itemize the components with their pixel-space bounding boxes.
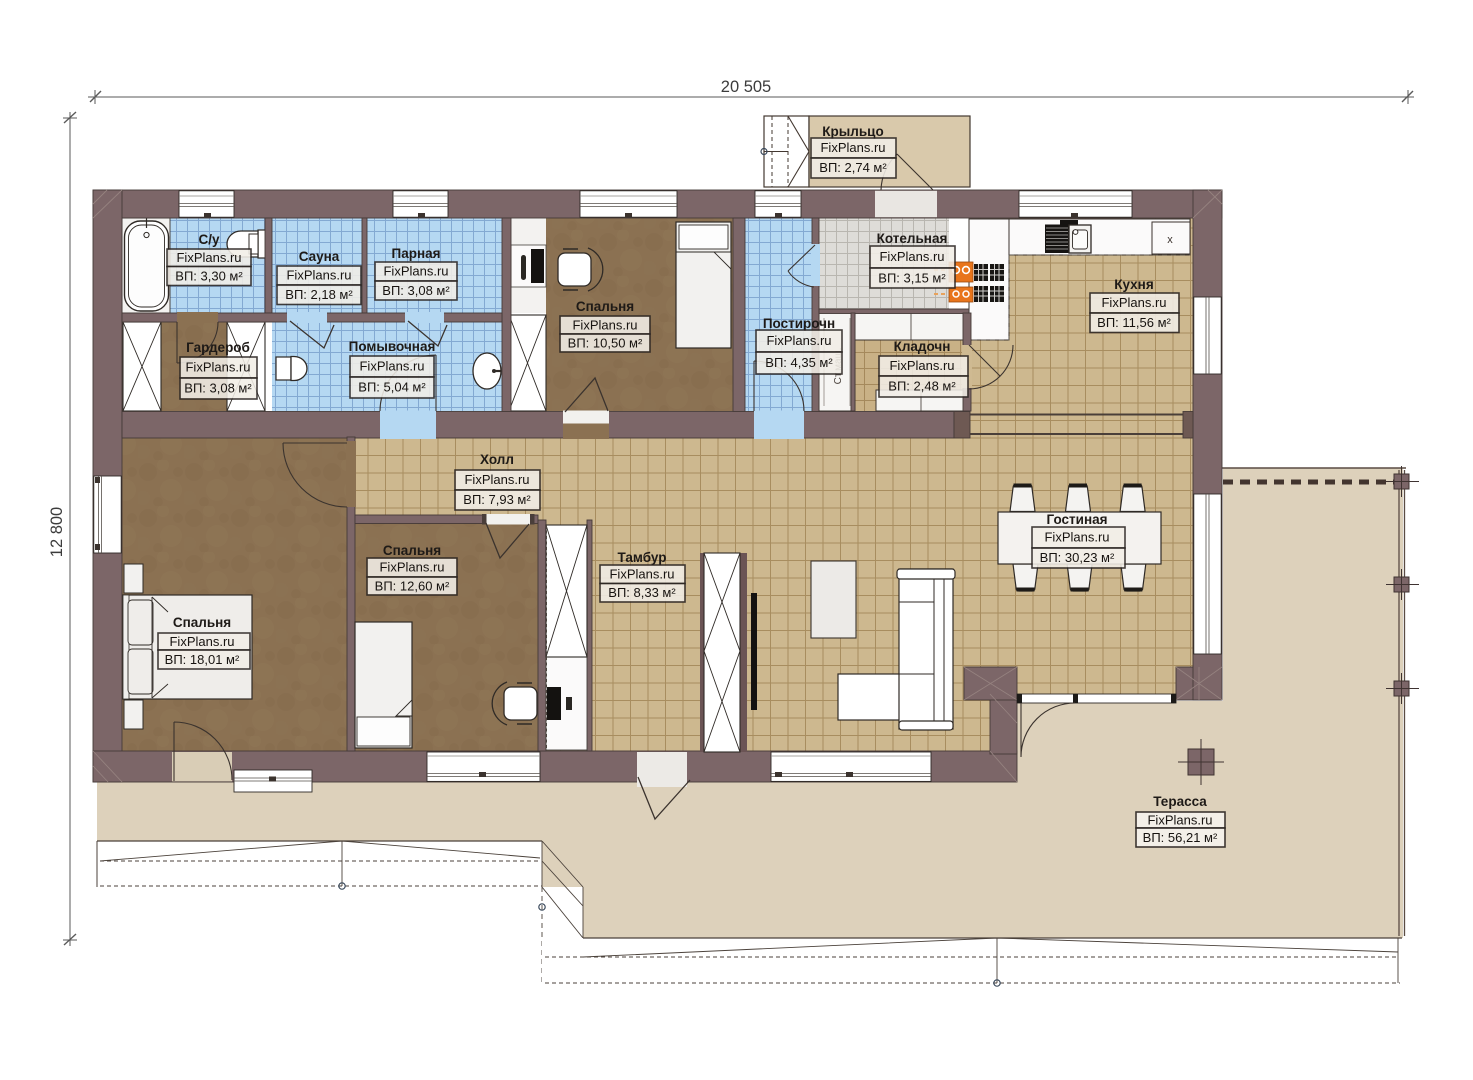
svg-text:Кладочн: Кладочн (894, 339, 951, 354)
svg-text:ВП: 56,21 м²: ВП: 56,21 м² (1143, 830, 1218, 845)
svg-text:Спальня: Спальня (576, 299, 634, 314)
svg-text:Сауна: Сауна (299, 249, 340, 264)
svg-text:FixPlans.ru: FixPlans.ru (889, 358, 954, 373)
svg-text:FixPlans.ru: FixPlans.ru (185, 360, 250, 375)
svg-text:FixPlans.ru: FixPlans.ru (383, 264, 448, 279)
svg-text:ВП: 30,23 м²: ВП: 30,23 м² (1040, 550, 1115, 565)
svg-text:ВП: 2,74 м²: ВП: 2,74 м² (819, 160, 887, 175)
svg-text:FixPlans.ru: FixPlans.ru (1101, 295, 1166, 310)
svg-text:FixPlans.ru: FixPlans.ru (766, 333, 831, 348)
svg-text:FixPlans.ru: FixPlans.ru (176, 250, 241, 265)
svg-text:Парная: Парная (392, 246, 441, 261)
svg-text:ВП: 5,04 м²: ВП: 5,04 м² (358, 380, 426, 395)
svg-text:Холл: Холл (480, 452, 514, 467)
svg-text:FixPlans.ru: FixPlans.ru (820, 140, 885, 155)
svg-text:ВП: 3,08 м²: ВП: 3,08 м² (184, 381, 252, 396)
svg-text:ВП: 11,56 м²: ВП: 11,56 м² (1097, 315, 1171, 330)
svg-text:FixPlans.ru: FixPlans.ru (609, 567, 674, 582)
svg-text:ВП: 4,35 м²: ВП: 4,35 м² (765, 355, 833, 370)
svg-text:ВП: 7,93 м²: ВП: 7,93 м² (463, 492, 531, 507)
svg-text:FixPlans.ru: FixPlans.ru (572, 318, 637, 333)
svg-text:FixPlans.ru: FixPlans.ru (1044, 530, 1109, 545)
svg-text:Котельная: Котельная (877, 231, 948, 246)
svg-text:x: x (1167, 234, 1173, 246)
svg-text:FixPlans.ru: FixPlans.ru (879, 249, 944, 264)
svg-text:Кухня: Кухня (1114, 277, 1153, 292)
svg-text:Помывочная: Помывочная (349, 339, 436, 354)
svg-text:ВП: 10,50 м²: ВП: 10,50 м² (568, 336, 643, 351)
svg-text:FixPlans.ru: FixPlans.ru (379, 560, 444, 575)
svg-text:FixPlans.ru: FixPlans.ru (464, 472, 529, 487)
svg-text:ВП: 2,48 м²: ВП: 2,48 м² (888, 379, 956, 394)
svg-text:12 800: 12 800 (48, 507, 66, 557)
svg-text:Гостиная: Гостиная (1046, 512, 1107, 527)
svg-text:ВП: 18,01 м²: ВП: 18,01 м² (165, 652, 240, 667)
svg-text:ВП: 3,15 м²: ВП: 3,15 м² (878, 271, 946, 286)
svg-text:FixPlans.ru: FixPlans.ru (169, 634, 234, 649)
svg-text:Гардероб: Гардероб (186, 340, 250, 355)
svg-text:С/у: С/у (198, 232, 220, 247)
svg-text:Спальня: Спальня (383, 543, 441, 558)
svg-text:Терасса: Терасса (1153, 794, 1207, 809)
svg-text:Спальня: Спальня (173, 615, 231, 630)
svg-text:ВП: 3,30 м²: ВП: 3,30 м² (175, 269, 243, 284)
svg-text:FixPlans.ru: FixPlans.ru (1147, 813, 1212, 828)
svg-text:Тамбур: Тамбур (618, 550, 667, 565)
svg-text:ВП: 12,60 м²: ВП: 12,60 м² (375, 579, 450, 594)
svg-text:ВП: 8,33 м²: ВП: 8,33 м² (608, 585, 676, 600)
svg-text:ВП: 2,18 м²: ВП: 2,18 м² (285, 287, 353, 302)
svg-text:FixPlans.ru: FixPlans.ru (286, 268, 351, 283)
svg-text:Постирочн: Постирочн (763, 316, 835, 331)
svg-text:Крыльцо: Крыльцо (822, 124, 883, 139)
svg-text:FixPlans.ru: FixPlans.ru (359, 359, 424, 374)
svg-text:ВП: 3,08 м²: ВП: 3,08 м² (382, 283, 450, 298)
svg-text:20 505: 20 505 (721, 78, 771, 96)
